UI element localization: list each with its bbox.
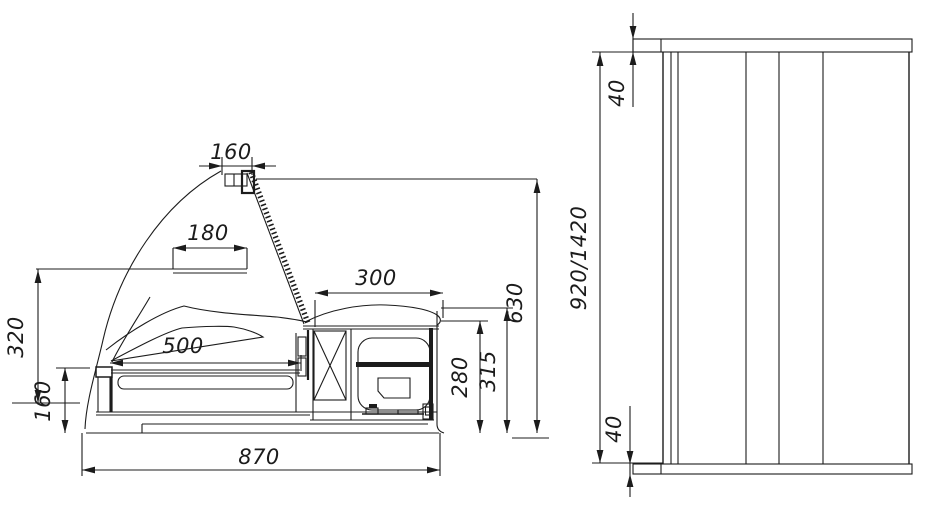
arrow-icon [534, 420, 541, 433]
dim-label-depth-total: 870 [238, 445, 280, 469]
rear-glass-panel [247, 172, 308, 324]
arrow-icon [504, 420, 511, 433]
top-panel [633, 39, 912, 52]
compressor [356, 338, 432, 414]
dim-label-shelf-height: 320 [4, 316, 28, 358]
dim-canopy-height: 630 [503, 179, 540, 433]
technical-drawing-canvas: 160 180 [0, 0, 927, 514]
arrow-icon [627, 474, 634, 487]
dim-deck-length: 500 [110, 334, 301, 371]
dim-label-top-panel-thickness: 40 [605, 79, 629, 107]
arrow-icon [62, 420, 69, 433]
dim-label-shelf-width: 180 [187, 221, 229, 245]
dim-label-deck-length: 500 [162, 334, 204, 358]
dim-bottom-panel-thickness: 40 [602, 406, 633, 497]
display-case-drawing: 160 180 [0, 0, 927, 514]
condenser-fan [314, 331, 346, 400]
display-tray [118, 376, 293, 389]
front-glass-curve [85, 171, 221, 429]
arrow-icon [252, 163, 265, 170]
dim-label-lamp-width: 160 [210, 140, 252, 164]
shelf-with-dim: 180 [36, 221, 247, 273]
dim-label-panel-height: 920/1420 [567, 206, 591, 311]
dim-label-machine-width: 300 [355, 266, 397, 290]
dim-front-height: 160 [31, 368, 90, 433]
arrow-icon [630, 52, 637, 65]
dim-label-counter-height: 315 [476, 350, 500, 392]
end-view: 40 920/1420 40 [567, 13, 912, 497]
arrow-icon [288, 360, 301, 367]
dim-top-panel-thickness: 40 [605, 13, 636, 107]
arrow-icon [430, 290, 443, 297]
dim-label-canopy-height: 630 [503, 282, 527, 324]
arrow-icon [477, 321, 484, 334]
arrow-icon [627, 451, 634, 464]
arrow-icon [82, 467, 95, 474]
compartment-rear-wall [429, 328, 433, 420]
arrow-icon [597, 450, 604, 463]
arrow-icon [234, 245, 247, 252]
arrow-icon [35, 270, 42, 283]
arrow-icon [427, 467, 440, 474]
dim-label-bottom-panel-thickness: 40 [602, 415, 626, 443]
dim-label-front-height: 160 [31, 380, 55, 422]
arrow-icon [62, 368, 69, 381]
dim-lamp-width: 160 [199, 140, 276, 175]
compartment-lid-curve [305, 305, 440, 325]
arrow-icon [477, 420, 484, 433]
dim-label-machine-height: 280 [448, 356, 472, 398]
product-contours [106, 306, 306, 361]
arrow-icon [534, 180, 541, 193]
dim-machine-width: 300 [315, 266, 443, 327]
side-section-view: 160 180 [4, 140, 549, 476]
panel-body-lines [663, 52, 909, 464]
arrow-icon [630, 26, 637, 39]
interior-decor-line [112, 297, 150, 362]
dim-panel-height: 920/1420 [567, 52, 663, 463]
bottom-panel [633, 464, 912, 474]
arrow-icon [173, 245, 186, 252]
lamp-assembly [225, 171, 254, 193]
machine-compartment [303, 305, 440, 420]
air-duct [296, 330, 308, 412]
dim-depth-total: 870 [82, 433, 440, 476]
arrow-icon [315, 290, 328, 297]
arrow-icon [597, 53, 604, 66]
